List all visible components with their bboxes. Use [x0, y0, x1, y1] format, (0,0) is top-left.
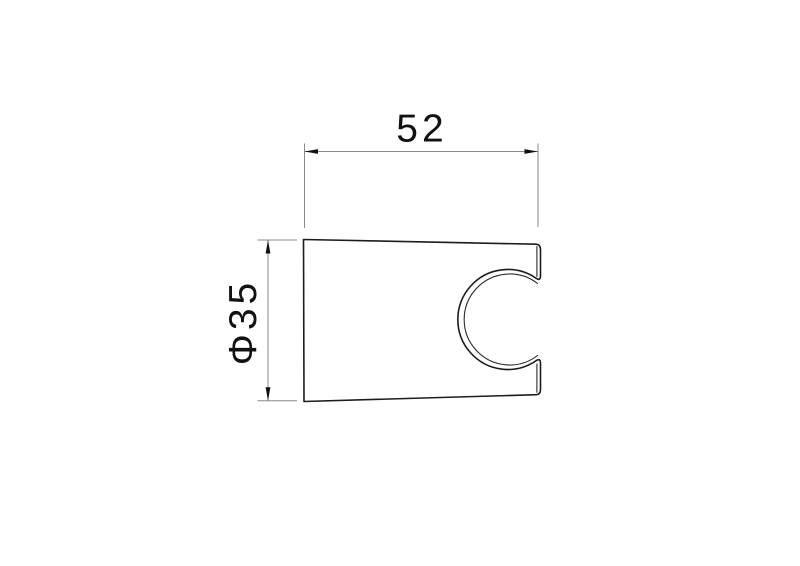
c-cutout-inner-edge-line — [464, 274, 537, 365]
diameter-arrowhead-bottom — [266, 387, 271, 401]
dimension-label-diameter: Φ35 — [222, 279, 265, 366]
width-arrowhead-right — [525, 149, 539, 154]
dimension-diameter: Φ35 — [222, 240, 297, 401]
dimension-label-width: 52 — [396, 108, 447, 151]
dimension-width: 52 — [305, 108, 539, 229]
part-view — [304, 240, 541, 402]
diameter-arrowhead-top — [266, 240, 271, 254]
part-outline — [304, 240, 541, 402]
technical-drawing-page: 52 Φ35 — [0, 0, 800, 566]
technical-drawing-canvas: 52 Φ35 — [0, 0, 800, 566]
width-arrowhead-left — [305, 149, 319, 154]
